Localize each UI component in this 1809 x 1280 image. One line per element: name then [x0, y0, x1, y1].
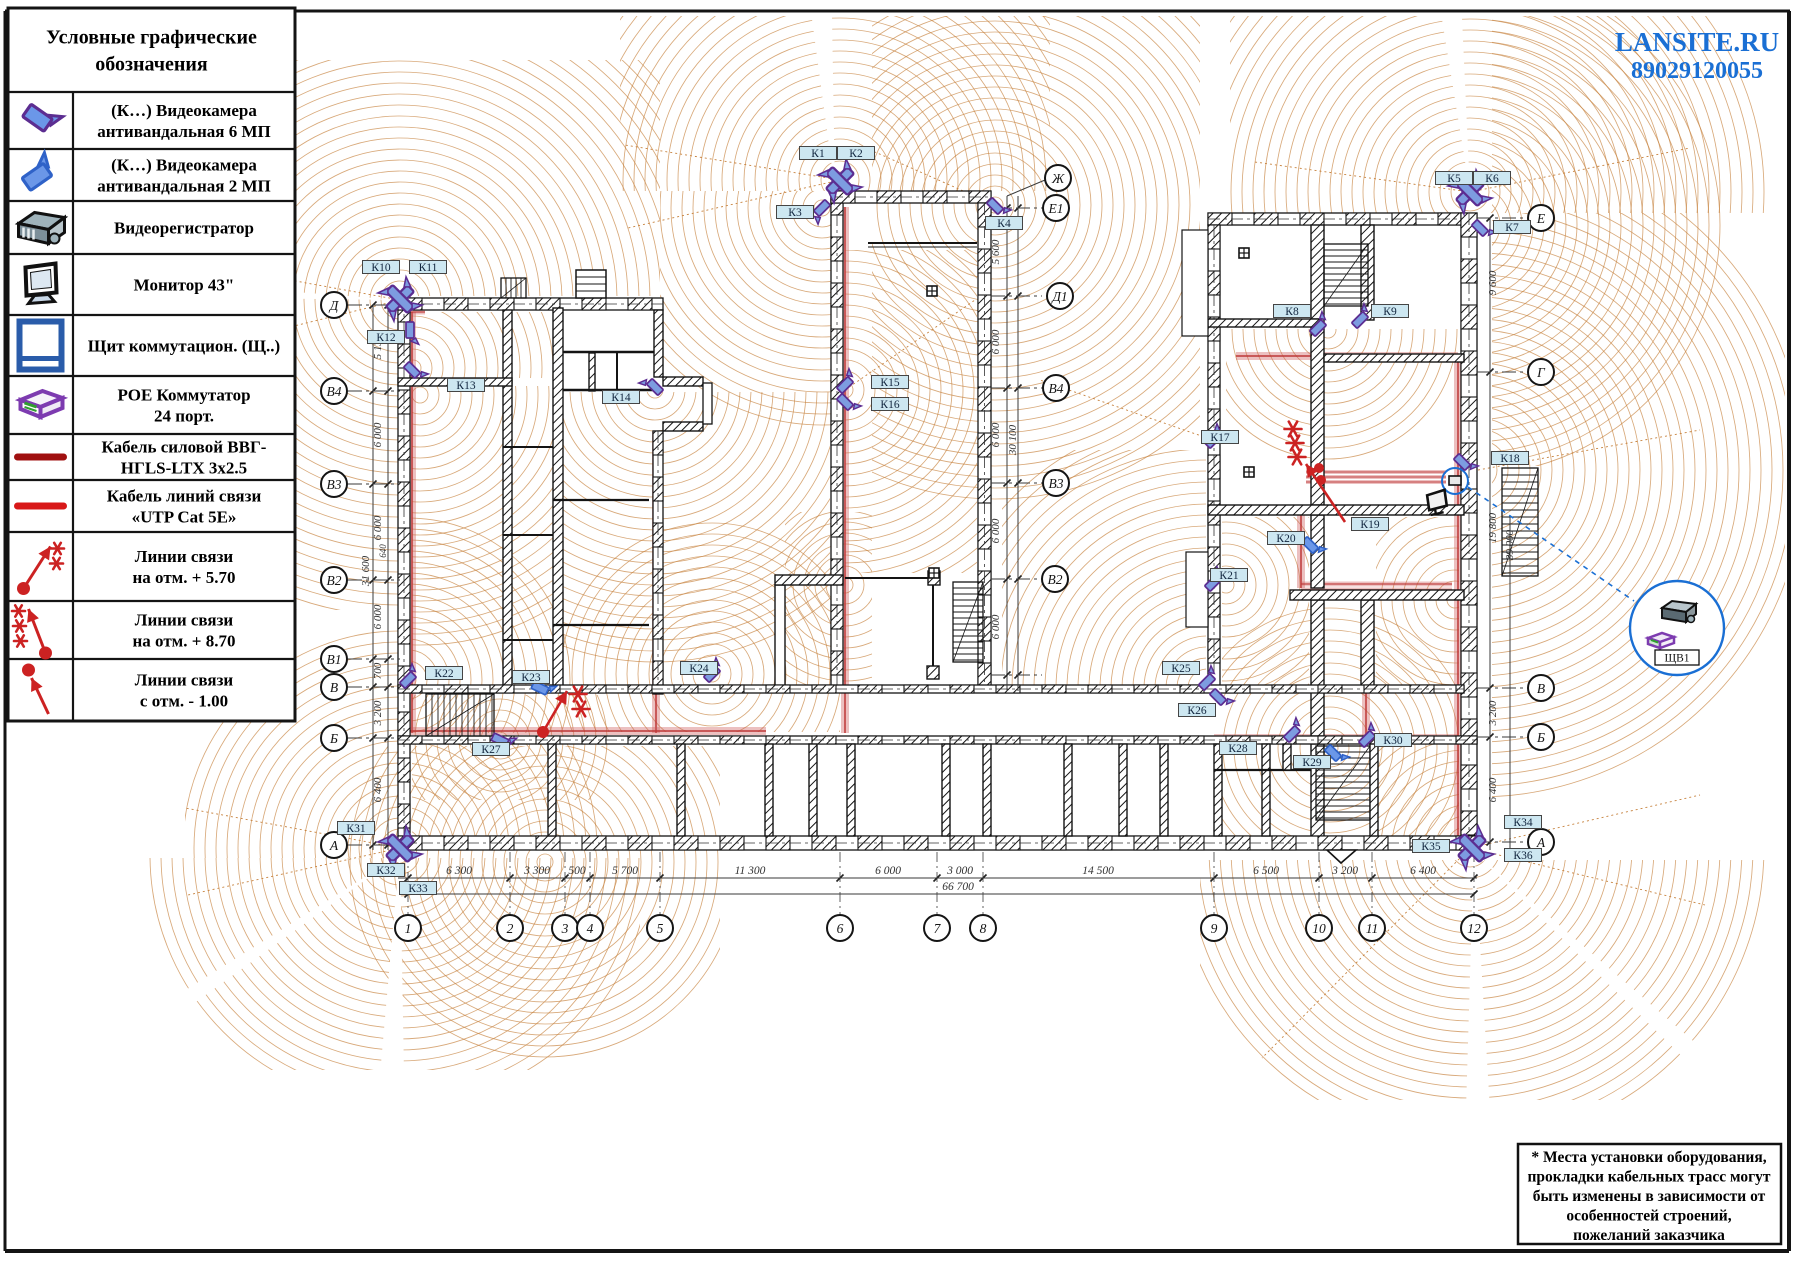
svg-text:с отм. - 1.00: с отм. - 1.00 [140, 691, 228, 710]
svg-text:В3: В3 [1049, 476, 1064, 491]
svg-text:* Места установки оборудования: * Места установки оборудования, [1531, 1149, 1766, 1166]
svg-text:12: 12 [1467, 921, 1481, 936]
svg-text:К1: К1 [811, 148, 825, 160]
svg-text:антивандальная 2 МП: антивандальная 2 МП [97, 176, 270, 195]
svg-text:К7: К7 [1505, 222, 1519, 234]
svg-text:К20: К20 [1276, 533, 1295, 545]
svg-text:К32: К32 [376, 865, 395, 877]
svg-text:К14: К14 [611, 392, 630, 404]
svg-text:6 000: 6 000 [372, 604, 384, 629]
svg-text:6 300: 6 300 [446, 865, 472, 877]
svg-text:К5: К5 [1447, 173, 1461, 185]
svg-text:К29: К29 [1302, 757, 1321, 769]
svg-text:В4: В4 [327, 384, 342, 399]
svg-text:6 500: 6 500 [1253, 865, 1279, 877]
svg-text:В: В [1537, 681, 1545, 696]
svg-text:К27: К27 [481, 744, 500, 756]
svg-text:4: 4 [587, 921, 594, 936]
svg-text:LANSITE.RU: LANSITE.RU [1615, 27, 1779, 57]
svg-text:К3: К3 [788, 207, 802, 219]
svg-text:Е: Е [1536, 211, 1546, 226]
svg-text:К18: К18 [1500, 453, 1519, 465]
svg-text:11: 11 [1366, 921, 1379, 936]
svg-text:6 000: 6 000 [990, 329, 1002, 354]
svg-text:6: 6 [837, 921, 844, 936]
svg-text:3 200: 3 200 [372, 700, 384, 726]
svg-text:К9: К9 [1383, 306, 1397, 318]
svg-text:Б: Б [1536, 730, 1545, 745]
svg-text:К22: К22 [434, 668, 453, 680]
svg-text:К36: К36 [1513, 850, 1532, 862]
svg-text:Линии связи: Линии связи [135, 670, 234, 689]
svg-text:К21: К21 [1219, 570, 1238, 582]
svg-text:К35: К35 [1421, 841, 1440, 853]
svg-text:К15: К15 [880, 377, 899, 389]
svg-text:9 600: 9 600 [1487, 270, 1499, 295]
svg-text:А: А [329, 838, 339, 853]
svg-text:6 000: 6 000 [875, 865, 901, 877]
svg-text:89029120055: 89029120055 [1631, 58, 1763, 84]
svg-text:14 500: 14 500 [1082, 865, 1114, 877]
svg-text:39 000: 39 000 [1504, 529, 1516, 561]
svg-text:11 300: 11 300 [735, 865, 766, 877]
svg-text:(К…) Видеокамера: (К…) Видеокамера [111, 155, 257, 174]
svg-text:8: 8 [980, 921, 987, 936]
svg-text:Щит коммутацион. (Щ..): Щит коммутацион. (Щ..) [88, 336, 280, 355]
svg-text:19 800: 19 800 [1487, 512, 1499, 543]
svg-text:6 400: 6 400 [1410, 865, 1436, 877]
svg-text:6 400: 6 400 [372, 777, 384, 802]
svg-text:5 600: 5 600 [990, 239, 1002, 264]
svg-text:К12: К12 [376, 332, 395, 344]
svg-text:(К…) Видеокамера: (К…) Видеокамера [111, 101, 257, 120]
svg-text:К13: К13 [456, 380, 475, 392]
svg-text:500: 500 [568, 865, 586, 877]
svg-text:3: 3 [561, 921, 569, 936]
svg-text:В2: В2 [327, 573, 342, 588]
svg-text:700: 700 [372, 662, 384, 679]
svg-text:на отм. + 5.70: на отм. + 5.70 [133, 568, 236, 587]
svg-text:В: В [330, 680, 338, 695]
svg-text:3 200: 3 200 [1487, 700, 1499, 726]
svg-text:5: 5 [657, 921, 664, 936]
svg-text:К10: К10 [371, 262, 390, 274]
svg-text:К11: К11 [419, 262, 438, 274]
svg-text:особенностей строений,: особенностей строений, [1566, 1208, 1731, 1225]
svg-text:6 000: 6 000 [990, 422, 1002, 447]
svg-text:24 порт.: 24 порт. [154, 406, 214, 425]
svg-text:6 000: 6 000 [990, 614, 1002, 639]
svg-text:К34: К34 [1513, 817, 1532, 829]
svg-text:3 300: 3 300 [523, 865, 550, 877]
svg-text:К28: К28 [1228, 743, 1247, 755]
svg-text:Линии связи: Линии связи [135, 610, 234, 629]
svg-text:Д1: Д1 [1050, 289, 1067, 304]
svg-text:К31: К31 [346, 823, 365, 835]
svg-text:3 200: 3 200 [1331, 865, 1358, 877]
svg-text:антивандальная 6 МП: антивандальная 6 МП [97, 122, 270, 141]
svg-text:В1: В1 [327, 652, 342, 667]
svg-text:К26: К26 [1187, 705, 1206, 717]
svg-text:2: 2 [507, 921, 514, 936]
svg-text:РОЕ Коммутатор: РОЕ Коммутатор [117, 385, 250, 404]
svg-text:прокладки кабельных трасс могу: прокладки кабельных трасс могут [1528, 1169, 1771, 1186]
svg-text:К19: К19 [1360, 519, 1379, 531]
svg-text:Кабель линий связи: Кабель линий связи [107, 486, 262, 505]
svg-text:на отм. + 8.70: на отм. + 8.70 [133, 631, 236, 650]
svg-text:обозначения: обозначения [95, 53, 208, 75]
svg-text:5 700: 5 700 [612, 865, 638, 877]
svg-text:6 000: 6 000 [372, 422, 384, 447]
svg-text:30 100: 30 100 [1007, 424, 1019, 456]
svg-text:Ж: Ж [1051, 171, 1065, 186]
svg-text:Е1: Е1 [1048, 201, 1064, 216]
svg-text:10: 10 [1312, 921, 1326, 936]
svg-text:В2: В2 [1048, 572, 1063, 587]
svg-text:6 400: 6 400 [1487, 777, 1499, 802]
svg-text:быть изменены в зависимости от: быть изменены в зависимости от [1533, 1188, 1766, 1205]
svg-text:К23: К23 [521, 672, 540, 684]
svg-text:Г: Г [1536, 365, 1546, 380]
svg-text:1: 1 [405, 921, 412, 936]
svg-text:640: 640 [378, 544, 388, 558]
svg-text:6 000: 6 000 [372, 515, 384, 540]
svg-text:К16: К16 [880, 399, 899, 411]
svg-text:Линии связи: Линии связи [135, 547, 234, 566]
svg-text:К2: К2 [849, 148, 863, 160]
svg-text:К6: К6 [1485, 173, 1499, 185]
svg-text:Кабель силовой ВВГ-: Кабель силовой ВВГ- [102, 437, 267, 456]
svg-text:Видеорегистратор: Видеорегистратор [114, 218, 254, 237]
svg-text:3 000: 3 000 [946, 865, 973, 877]
svg-text:Монитор 43": Монитор 43" [134, 275, 235, 294]
svg-text:6 000: 6 000 [990, 518, 1002, 543]
svg-text:К33: К33 [408, 883, 427, 895]
svg-text:«UTP Cat 5E»: «UTP Cat 5E» [132, 507, 237, 526]
svg-text:9: 9 [1211, 921, 1218, 936]
svg-text:К17: К17 [1210, 432, 1229, 444]
svg-text:В4: В4 [1049, 381, 1064, 396]
svg-text:К4: К4 [997, 218, 1011, 230]
svg-text:ЩВ1: ЩВ1 [1664, 653, 1689, 665]
svg-text:Б: Б [329, 731, 338, 746]
svg-text:пожеланий заказчика: пожеланий заказчика [1573, 1227, 1725, 1244]
svg-text:66 700: 66 700 [942, 881, 974, 893]
svg-text:31 600: 31 600 [360, 555, 372, 587]
svg-text:В3: В3 [327, 477, 342, 492]
svg-text:К25: К25 [1171, 663, 1190, 675]
svg-text:Д: Д [328, 298, 340, 313]
svg-text:К8: К8 [1285, 306, 1299, 318]
svg-text:Условные графические: Условные графические [46, 26, 257, 48]
svg-text:К30: К30 [1383, 735, 1402, 747]
svg-text:А: А [1536, 835, 1546, 850]
svg-text:НГLS-LTX 3x2.5: НГLS-LTX 3x2.5 [121, 458, 247, 477]
svg-text:К24: К24 [689, 663, 708, 675]
